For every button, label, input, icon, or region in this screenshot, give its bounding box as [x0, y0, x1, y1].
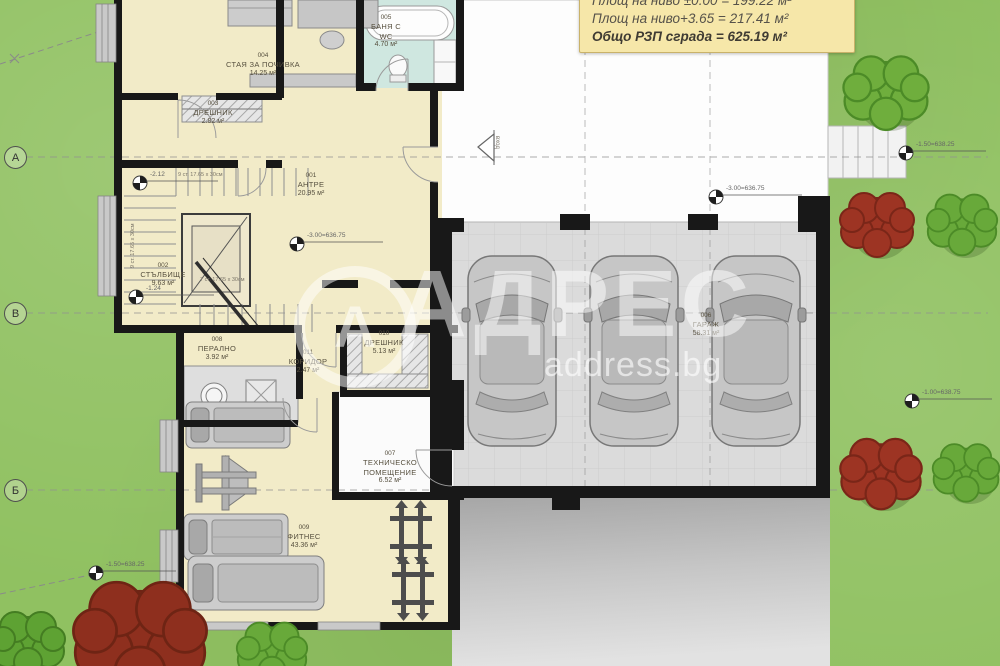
- green-bush: [933, 444, 1000, 502]
- green-bush: [0, 612, 65, 666]
- room-name: ФИТНЕС: [287, 532, 320, 541]
- grid-row-letter: А: [12, 152, 19, 164]
- room-area: 6.52 м²: [357, 477, 423, 486]
- room-area: 58.31 м²: [693, 330, 720, 339]
- room-number: 001: [298, 172, 325, 180]
- room-label-003: 003 ДРЕШНИК 2.82 м²: [193, 100, 232, 126]
- garage-cars: [462, 256, 806, 446]
- room-area: 20.95 м²: [298, 190, 325, 199]
- elevation-label: -1.50=638.25: [106, 561, 145, 568]
- area-summary-line-2: Площ на ниво+3.65 = 217.41 м²: [592, 10, 844, 28]
- room-label-011: 011 КОРИДОР 2.47 м²: [289, 349, 328, 375]
- car: [706, 256, 806, 446]
- area-summary-total: Общо РЗП сграда = 625.19 м²: [592, 28, 844, 46]
- room-name: ПЕРАЛНО: [198, 344, 236, 353]
- grid-row-bubble-v: В: [4, 302, 27, 325]
- room-number: 002: [140, 262, 185, 270]
- grid-row-bubble-b: Б: [4, 479, 27, 502]
- elevation-label: -1.00=638.75: [922, 389, 961, 396]
- room-number: 005: [364, 14, 408, 22]
- room-area: 2.82 м²: [193, 118, 232, 127]
- room-number: 008: [198, 336, 236, 344]
- room-label-009: 009 ФИТНЕС 43.36 м²: [287, 524, 320, 550]
- room-area: 3.92 м²: [198, 354, 236, 363]
- room-name: АНТРЕ: [298, 180, 325, 189]
- room-area: 43.36 м²: [287, 542, 320, 551]
- room-number: 004: [226, 52, 300, 60]
- room-number: 006: [693, 312, 720, 320]
- grid-row-letter: Б: [12, 485, 19, 497]
- elevation-label: -3.00=636.75: [726, 185, 765, 192]
- room-label-006: 006 ГАРАЖ 58.31 м²: [693, 312, 720, 338]
- room-label-005: 005 БАНЯ С WC 4.70 м²: [364, 14, 408, 50]
- exterior-stairs: [828, 126, 906, 178]
- room-number: 011: [289, 349, 328, 357]
- room-name: ДРЕШНИК: [193, 108, 232, 117]
- toilet: [389, 55, 407, 77]
- green-bush: [237, 623, 307, 666]
- room-number: 009: [287, 524, 320, 532]
- treadmill: [184, 514, 288, 560]
- green-bush: [843, 56, 928, 130]
- room-name: КОРИДОР: [289, 357, 328, 366]
- green-bush: [927, 195, 997, 256]
- car: [462, 256, 562, 446]
- area-summary-box: Площ на ниво ±0.00 = 199.22 м² Площ на н…: [579, 0, 855, 53]
- room-area: 4.70 м²: [364, 41, 408, 50]
- rowing-machine: [188, 556, 324, 610]
- room-label-007: 007 ТЕХНИЧЕСКО ПОМЕЩЕНИЕ 6.52 м²: [357, 450, 423, 486]
- room-name: СТАЯ ЗА ПОЧИВКА: [226, 60, 300, 69]
- room-name: ГАРАЖ: [693, 320, 720, 329]
- floor-ramp-pavement: [452, 494, 830, 666]
- room-label-010: 010 ДРЕШНИК 5.13 м²: [364, 330, 403, 356]
- elevation-label: -1.50=638.25: [916, 141, 955, 148]
- room-number: 007: [357, 450, 423, 458]
- car: [584, 256, 684, 446]
- room-area: 5.13 м²: [364, 348, 403, 357]
- room-name: ТЕХНИЧЕСКО ПОМЕЩЕНИЕ: [357, 458, 423, 477]
- room-name: БАНЯ С WC: [364, 22, 408, 41]
- floor-plan-drawing: [0, 0, 1000, 666]
- elevation-label: -1.24: [146, 285, 161, 292]
- grid-row-bubble-a: А: [4, 146, 27, 169]
- floorplan-canvas: А В Б 004 СТАЯ ЗА ПОЧИВКА 14.25 м² 003 Д…: [0, 0, 1000, 666]
- room-label-008: 008 ПЕРАЛНО 3.92 м²: [198, 336, 236, 362]
- stair-note-top: 9 ст. 17.65 х 30см: [178, 172, 223, 178]
- red-tree: [840, 439, 921, 509]
- room-number: 010: [364, 330, 403, 338]
- elevation-label: -2.12: [150, 171, 165, 178]
- red-tree: [840, 193, 914, 257]
- elevation-label: -3.00=636.75: [307, 232, 346, 239]
- room-area: 2.47 м²: [289, 367, 328, 376]
- red-tree-large: [73, 582, 206, 666]
- room-name: СТЪЛБИЩЕ: [140, 270, 185, 279]
- room-area: 14.25 м²: [226, 70, 300, 79]
- room-number: 003: [193, 100, 232, 108]
- entrance-label: вход: [494, 136, 500, 149]
- room-name: ДРЕШНИК: [364, 338, 403, 347]
- stair-note-bottom: 7 ст. 17.65 х 30см: [200, 277, 245, 283]
- room-label-004: 004 СТАЯ ЗА ПОЧИВКА 14.25 м²: [226, 52, 300, 78]
- elevator: [182, 214, 250, 306]
- room-label-001: 001 АНТРЕ 20.95 м²: [298, 172, 325, 198]
- area-summary-line-1: Площ на ниво ±0.00 = 199.22 м²: [592, 0, 844, 10]
- stair-note-left: 9 ст. 17.65 х 30см: [130, 223, 136, 268]
- grid-row-letter: В: [12, 308, 19, 320]
